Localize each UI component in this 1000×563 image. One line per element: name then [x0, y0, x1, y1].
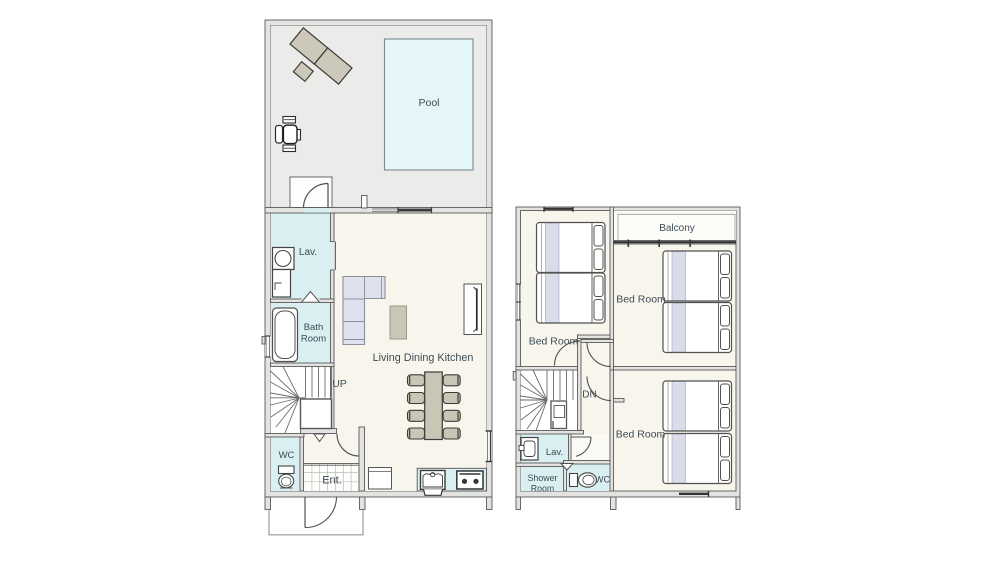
- svg-text:Bath: Bath: [304, 322, 324, 333]
- svg-text:WC: WC: [279, 450, 295, 461]
- svg-text:DN: DN: [582, 390, 596, 401]
- svg-text:Ent.: Ent.: [322, 475, 342, 487]
- svg-text:Balcony: Balcony: [659, 223, 695, 234]
- svg-text:Room: Room: [531, 484, 554, 494]
- svg-text:Pool: Pool: [418, 97, 439, 109]
- svg-text:Shower: Shower: [528, 473, 558, 483]
- svg-text:UP: UP: [332, 378, 347, 390]
- svg-text:Bed Room: Bed Room: [616, 429, 666, 441]
- svg-text:Lav.: Lav.: [299, 247, 317, 258]
- svg-text:Bed Room: Bed Room: [529, 336, 579, 348]
- svg-text:WC: WC: [595, 475, 610, 485]
- svg-text:Living Dining Kitchen: Living Dining Kitchen: [373, 352, 474, 364]
- svg-text:Room: Room: [301, 334, 326, 345]
- svg-text:Lav.: Lav.: [546, 447, 563, 458]
- svg-text:Bed Room: Bed Room: [616, 294, 666, 306]
